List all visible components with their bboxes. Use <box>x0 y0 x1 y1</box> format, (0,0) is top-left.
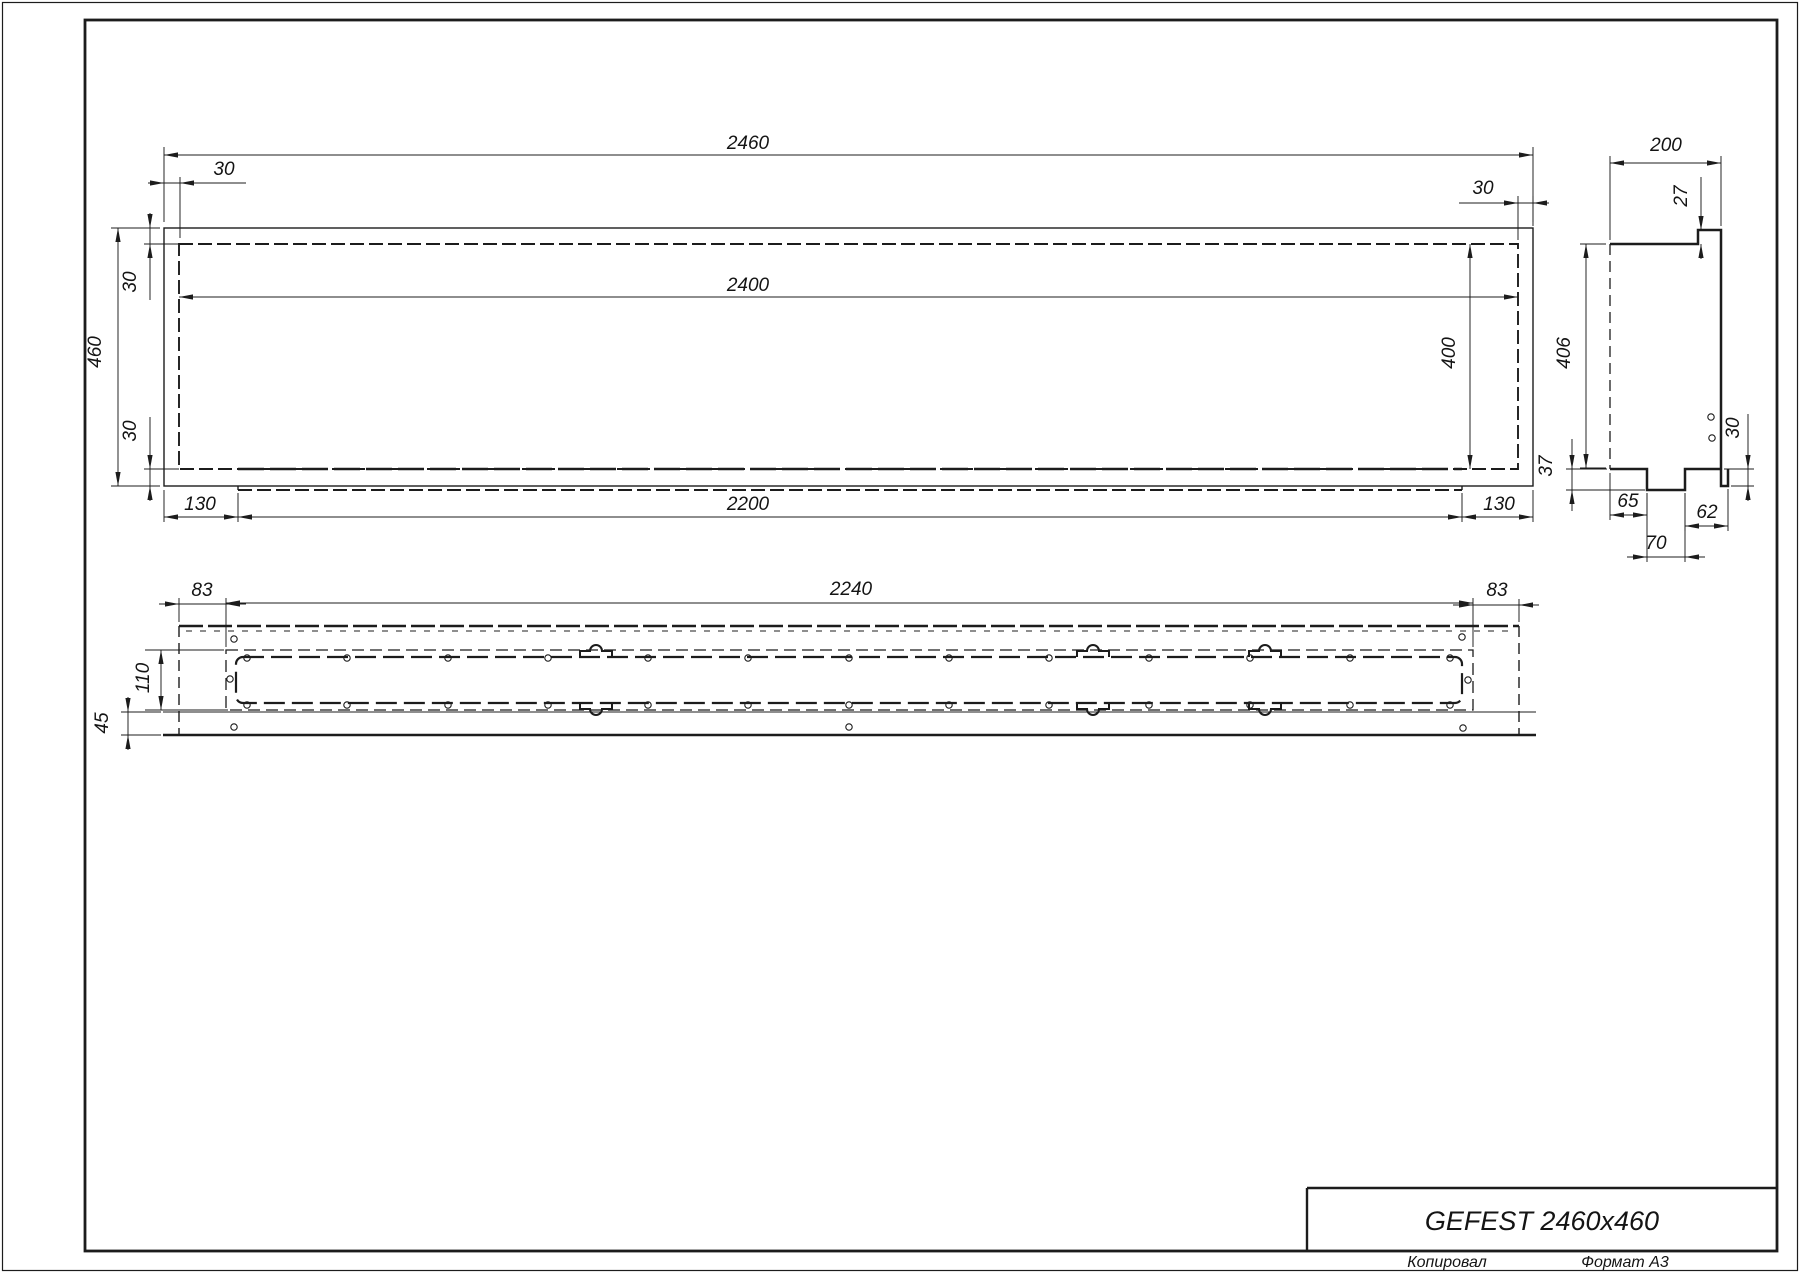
dimension-arrow <box>1448 514 1462 519</box>
dim-front-height-total: 460 <box>85 228 160 486</box>
outer-border <box>3 3 1798 1271</box>
top-mounting-holes <box>227 634 1471 731</box>
dimension-arrow <box>158 696 163 710</box>
slot-clip-bottom <box>580 703 612 715</box>
dimension-arrow <box>1583 244 1588 258</box>
dimension-value: 27 <box>1671 184 1692 208</box>
dim-front-height-inner: 400 <box>1439 244 1473 469</box>
dimension-arrow <box>1462 514 1476 519</box>
dimension-value: 65 <box>1617 491 1639 512</box>
dimension-value: 30 <box>120 420 141 442</box>
slot-clip-bottom <box>1249 703 1281 715</box>
dim-front-tray-right: 130 <box>1462 490 1533 522</box>
dimension-value: 460 <box>85 336 106 368</box>
dimension-value: 2460 <box>726 133 770 154</box>
dim-front-tray-width: 2200 <box>238 493 1462 522</box>
dimension-value: 30 <box>1723 417 1744 439</box>
mounting-hole <box>227 676 233 682</box>
dim-side-depth: 200 <box>1610 135 1721 240</box>
dimension-arrow <box>179 294 193 299</box>
dimension-value: 37 <box>1536 454 1557 477</box>
dimension-arrow <box>1633 554 1647 559</box>
mounting-hole <box>1460 725 1466 731</box>
front-inner-hidden-box <box>179 244 1518 469</box>
dimension-arrow <box>1610 512 1624 517</box>
dimension-arrow <box>115 228 120 242</box>
top-slot-clips <box>580 645 1281 715</box>
slot-clip-top <box>1077 645 1109 657</box>
dimension-arrow <box>1533 200 1547 205</box>
format-label: Формат А3 <box>1581 1254 1669 1271</box>
dimension-arrow <box>1467 455 1472 469</box>
dim-front-tray-left: 130 <box>164 490 238 522</box>
dim-side-bottom-lip: 30 <box>1723 414 1754 501</box>
dimension-arrow <box>1685 554 1699 559</box>
dimension-arrow <box>1467 244 1472 258</box>
dimension-arrow <box>1519 152 1533 157</box>
mounting-hole <box>344 702 350 708</box>
dimension-arrow <box>1714 523 1728 528</box>
dimension-value: 2240 <box>829 579 873 600</box>
drawing-canvas: GEFEST 2460x460 Копировал Формат А3 2460… <box>0 0 1800 1273</box>
dimension-arrow <box>147 455 152 469</box>
dimension-arrow <box>180 180 194 185</box>
dimension-arrow <box>1698 244 1703 258</box>
mounting-hole <box>231 724 237 730</box>
dimension-arrow <box>150 180 164 185</box>
dimension-value: 400 <box>1439 337 1460 369</box>
dim-side-height-inner: 406 <box>1554 244 1606 468</box>
dim-side-notch-right: 62 <box>1685 489 1728 531</box>
front-view <box>164 228 1533 490</box>
dimension-value: 130 <box>1483 494 1515 515</box>
dimension-arrow <box>164 152 178 157</box>
dimension-value: 45 <box>92 712 113 734</box>
dim-top-slot-width: 2240 <box>226 579 1473 647</box>
slot-clip-top <box>1249 645 1281 657</box>
mounting-hole <box>1459 634 1465 640</box>
dimension-arrow <box>1685 523 1699 528</box>
dimension-arrow <box>1745 455 1750 469</box>
dim-front-frame-bottom: 30 <box>120 417 179 501</box>
side-outline-bottom <box>1610 469 1721 490</box>
dim-front-frame-left: 30 <box>148 159 246 238</box>
dimension-value: 130 <box>184 494 216 515</box>
dimension-value: 62 <box>1696 502 1718 523</box>
dimension-arrow <box>238 514 252 519</box>
dimension-arrow <box>1583 454 1588 468</box>
drawing-sheet: GEFEST 2460x460 Копировал Формат А3 2460… <box>0 0 1800 1273</box>
slot-clip-top <box>580 645 612 657</box>
dimension-arrow <box>1504 294 1518 299</box>
dimension-arrow <box>1519 602 1533 607</box>
sheet-frame <box>3 3 1798 1271</box>
dimension-arrow <box>147 486 152 500</box>
dimension-arrow <box>1519 514 1533 519</box>
side-view <box>1610 230 1728 490</box>
top-slot-zone-hidden <box>226 650 1473 710</box>
dimension-value: 83 <box>1486 580 1508 601</box>
dimension-arrow <box>164 514 178 519</box>
dimension-arrow <box>1610 160 1624 165</box>
dimension-value: 2200 <box>726 494 770 515</box>
top-slot-opening-hidden <box>236 657 1462 703</box>
mounting-hole <box>231 636 237 642</box>
dimension-arrow <box>1698 216 1703 230</box>
dim-front-frame-top: 30 <box>120 213 179 300</box>
dimension-value: 30 <box>120 271 141 293</box>
dimension-value: 30 <box>213 159 235 180</box>
dimension-value: 70 <box>1645 533 1667 554</box>
mounting-hole <box>545 655 551 661</box>
front-outer-frame <box>164 228 1533 486</box>
dimension-arrow <box>165 601 179 606</box>
mounting-hole <box>846 724 852 730</box>
dimension-arrow <box>147 214 152 228</box>
dim-top-slot-depth: 110 <box>133 650 228 710</box>
dimension-value: 110 <box>133 662 154 693</box>
side-hole-lower <box>1709 435 1715 441</box>
dim-side-top-lip: 27 <box>1671 177 1704 259</box>
dim-front-width-inner: 2400 <box>179 275 1518 300</box>
dimension-value: 200 <box>1649 135 1682 156</box>
drawing-title: GEFEST 2460x460 <box>1425 1206 1659 1236</box>
dim-top-front-strip: 45 <box>92 697 161 750</box>
top-view <box>163 626 1536 735</box>
dimension-value: 30 <box>1472 178 1494 199</box>
dimension-value: 83 <box>191 580 213 601</box>
dimension-arrow <box>1745 486 1750 500</box>
slot-clip-bottom <box>1077 703 1109 715</box>
dimension-arrow <box>115 472 120 486</box>
dimension-arrow <box>1707 160 1721 165</box>
copied-label: Копировал <box>1407 1254 1487 1271</box>
dim-top-margin-right: 83 <box>1453 580 1539 622</box>
dimension-arrow <box>125 735 130 749</box>
side-outline-top-right <box>1610 230 1728 486</box>
dimension-value: 2400 <box>726 275 770 296</box>
dimension-arrow <box>1569 455 1574 469</box>
dimension-value: 406 <box>1554 337 1575 369</box>
mounting-hole <box>1347 702 1353 708</box>
dimension-arrow <box>158 650 163 664</box>
dimension-arrow <box>125 698 130 712</box>
side-hole-upper <box>1708 414 1714 420</box>
dimension-arrow <box>1569 490 1574 504</box>
mounting-hole <box>846 702 852 708</box>
dimension-arrow <box>147 244 152 258</box>
dimension-arrow <box>224 514 238 519</box>
dim-front-frame-right: 30 <box>1459 178 1549 240</box>
dim-side-notch-left: 65 <box>1610 473 1647 520</box>
dimension-arrow <box>1633 512 1647 517</box>
dim-top-margin-left: 83 <box>159 580 246 622</box>
mounting-hole <box>1465 677 1471 683</box>
dimension-arrow <box>1504 200 1518 205</box>
inner-frame <box>85 20 1777 1251</box>
dim-front-width-total: 2460 <box>164 133 1533 222</box>
